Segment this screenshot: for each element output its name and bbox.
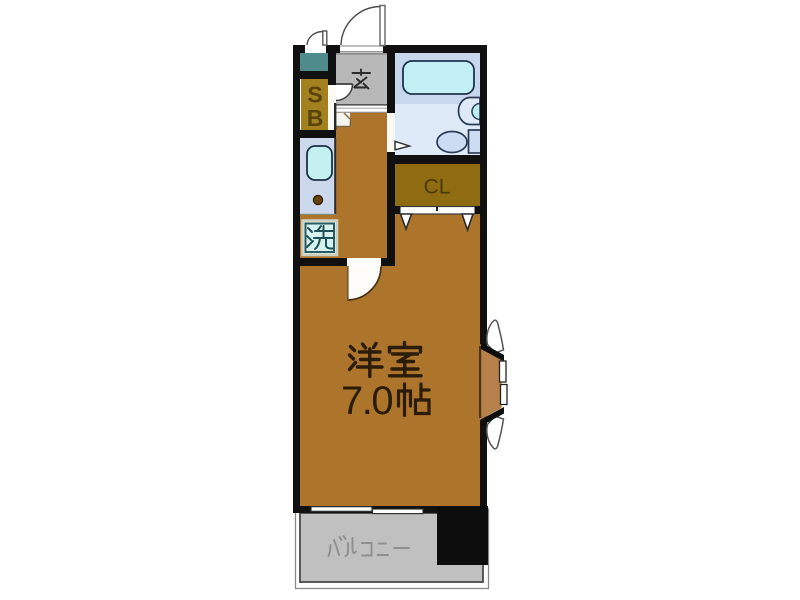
svg-text:CL: CL (424, 176, 451, 199)
svg-text:S: S (307, 82, 322, 108)
svg-text:7.0: 7.0 (341, 379, 392, 423)
svg-text:B: B (307, 105, 324, 131)
